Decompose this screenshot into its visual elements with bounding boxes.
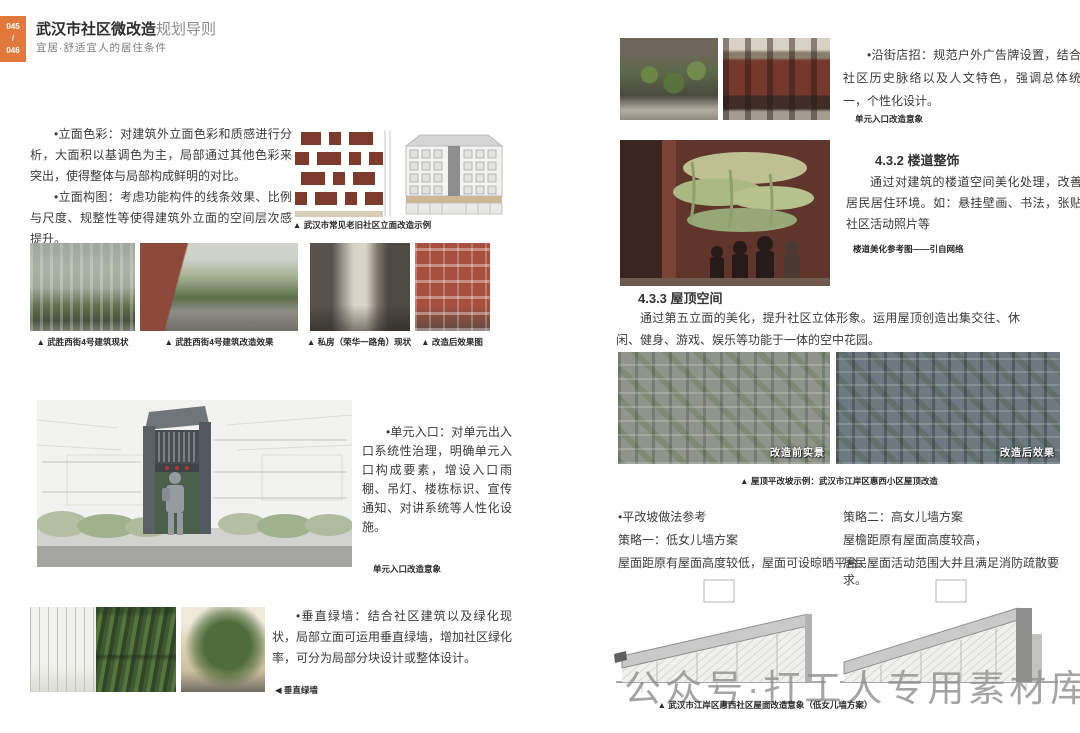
page-number-top: 045 [0, 22, 26, 32]
greenwall-photo-1-facade [30, 607, 96, 692]
elevation-illustration-brown [295, 128, 395, 220]
shopfront-photo-2 [723, 38, 830, 120]
paragraph-shop-sign: •沿街店招：规范户外广告牌设置，结合社区历史脉络以及人文特色，强调总体统一，个性… [843, 44, 1080, 113]
shop-sign-text: •沿街店招：规范户外广告牌设置，结合社区历史脉络以及人文特色，强调总体统一，个性… [843, 44, 1080, 113]
shopsign-caption: 单元入口改造意象 [855, 113, 923, 125]
photo-caption-1: ▲ 武胜西街4号建筑现状 [30, 336, 135, 348]
page-number-separator: / [0, 34, 26, 44]
shopfront-photo-1 [620, 38, 718, 120]
facade-paragraphs: •立面色彩：对建筑外立面色彩和质感进行分析，大面积以基调色为主，局部通过其他色彩… [30, 124, 292, 250]
page-subtitle: 宜居·舒适宜人的居住条件 [36, 40, 167, 55]
elevation-caption: ▲ 武汉市常见老旧社区立面改造示例 [262, 219, 462, 231]
page-title-strong: 武汉市社区微改造 [36, 21, 156, 38]
greenwall-caption: ◀ 垂直绿墙 [275, 684, 318, 696]
pitch-ref-title: •平改坡做法参考 [618, 508, 706, 525]
roof-caption: ▲ 武汉市江岸区惠西社区屋面改造意象（低女儿墙方案） [600, 699, 930, 711]
aerial-caption: ▲ 屋顶平改坡示例：武汉市江岸区惠西小区屋顶改造 [618, 475, 1060, 487]
photo-private-house-current [310, 243, 410, 331]
photo-renovation-effect [415, 243, 490, 331]
paragraph-unit-entrance: •单元入口：对单元出入口系统性治理，明确单元入口构成要素，增设入口雨棚、吊灯、楼… [362, 423, 512, 537]
photo-caption-2: ▲ 武胜西街4号建筑改造效果 [140, 336, 298, 348]
greenwall-text: •垂直绿墙：结合社区建筑以及绿化现状，局部立面可运用垂直绿墙，增加社区绿化率，可… [272, 606, 512, 669]
strategy1-title: 策略一：低女儿墙方案 [618, 531, 738, 548]
greenwall-photo-1-wall [96, 607, 176, 692]
section-432-caption: 楼道美化参考图——引自网络 [853, 243, 964, 255]
unit-entrance-text: •单元入口：对单元出入口系统性治理，明确单元入口构成要素，增设入口雨棚、吊灯、楼… [362, 423, 512, 537]
elevation-illustration-gray [400, 130, 508, 218]
strategy1-desc: 屋面距原有屋面高度较低，屋面可设晾晒平台。 [618, 554, 870, 571]
entrance-caption: 单元入口改造意象 [373, 563, 441, 575]
entrance-rendering [37, 400, 352, 567]
aerial-photo-before: 改造前实景 [618, 352, 830, 464]
photo-wusheng-west-current [30, 243, 135, 331]
section-432-heading: 4.3.2 楼道整饰 [875, 150, 960, 169]
photo-caption-4: ▲ 改造后效果图 [412, 336, 492, 348]
document-page: 045 / 046 武汉市社区微改造规划导则 宜居·舒适宜人的居住条件 •立面色… [0, 0, 1080, 733]
photo-caption-3: ▲ 私房（荣华一路角）现状 [303, 336, 415, 348]
section-432-body-wrap: 通过对建筑的楼道空间美化处理，改善居民居住环境。如：悬挂壁画、书法，张贴社区活动… [846, 172, 1080, 235]
greenwall-photo-1 [30, 607, 176, 692]
page-number-tab: 045 / 046 [0, 16, 26, 62]
aerial-photo-after: 改造后效果 [836, 352, 1060, 464]
corridor-greening-photo [620, 140, 830, 286]
paragraph-facade-composition: •立面构图：考虑功能构件的线条效果、比例与尺度、规整性等使得建筑外立面的空间层次… [30, 187, 292, 250]
strategy2-title: 策略二：高女儿墙方案 [843, 508, 963, 525]
aerial-label-after: 改造后效果 [1000, 444, 1055, 459]
section-433-heading: 4.3.3 屋顶空间 [638, 288, 723, 307]
paragraph-facade-color: •立面色彩：对建筑外立面色彩和质感进行分析，大面积以基调色为主，局部通过其他色彩… [30, 124, 292, 187]
paragraph-greenwall: •垂直绿墙：结合社区建筑以及绿化现状，局部立面可运用垂直绿墙，增加社区绿化率，可… [272, 606, 512, 669]
section-433-body-wrap: 通过第五立面的美化，提升社区立体形象。运用屋顶创造出集交往、休闲、健身、游戏、娱… [616, 307, 1020, 351]
page-title: 武汉市社区微改造规划导则 [36, 18, 216, 39]
photo-wusheng-west-renovated [140, 243, 298, 331]
aerial-label-before: 改造前实景 [770, 444, 825, 459]
section-433-body: 通过第五立面的美化，提升社区立体形象。运用屋顶创造出集交往、休闲、健身、游戏、娱… [616, 307, 1020, 351]
page-number-bottom: 046 [0, 46, 26, 56]
page-title-rest: 规划导则 [156, 21, 216, 38]
greenwall-photo-2 [181, 607, 265, 692]
section-432-body: 通过对建筑的楼道空间美化处理，改善居民居住环境。如：悬挂壁画、书法，张贴社区活动… [846, 172, 1080, 235]
strategy2-desc-1: 屋檐距原有屋面高度较高， [843, 531, 987, 548]
